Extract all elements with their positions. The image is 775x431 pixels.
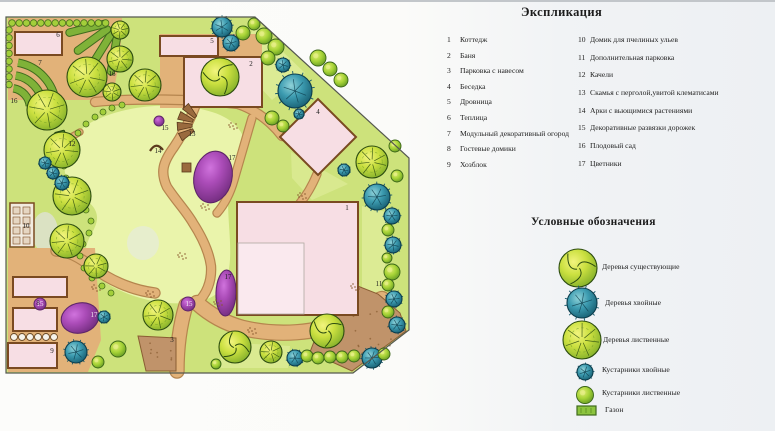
existing-tree: [219, 331, 251, 363]
deciduous-shrub: [324, 351, 336, 363]
hedge-shrub: [92, 114, 98, 120]
hedge-shrub: [30, 20, 37, 27]
item-label: Скамья с перголой,увитой клематисами: [590, 89, 773, 97]
greenhouse: [15, 32, 62, 55]
item-label: Плодовый сад: [590, 142, 773, 150]
item-number: 12: [578, 71, 590, 79]
deciduous-shrub: [382, 279, 394, 291]
plan-number-label: 1: [345, 204, 349, 212]
item-label: Беседка: [460, 83, 577, 91]
deciduous-shrub: [261, 51, 275, 65]
explication-item: 11Дополнительная парковка: [578, 54, 773, 72]
hedge-shrub: [6, 42, 13, 49]
hedge-shrub: [52, 20, 59, 27]
deciduous-tree: [103, 83, 121, 101]
explication-item: 3Парковка с навесом: [447, 67, 577, 83]
deciduous-shrub: [92, 356, 104, 368]
item-number: 9: [447, 161, 460, 169]
hedge-shrub: [6, 58, 13, 65]
item-label: Хозблок: [460, 161, 577, 169]
stepping-stone: [27, 334, 34, 341]
deciduous-tree: [27, 90, 67, 130]
conifer-tree: [383, 207, 402, 226]
item-label: Гостевые домики: [460, 145, 577, 153]
item-label: Дополнительная парковка: [590, 54, 773, 62]
deciduous-shrub: [336, 351, 348, 363]
deciduous-tree: [67, 57, 107, 97]
symbol-label: Кустарники хвойные: [602, 366, 670, 374]
item-number: 17: [578, 160, 590, 168]
hedge-shrub: [99, 283, 105, 289]
symbols-title: Условные обозначения: [531, 216, 656, 228]
plan-number-label: 14: [155, 147, 163, 155]
hedge-shrub: [86, 230, 92, 236]
stepping-stone: [19, 334, 26, 341]
deciduous-tree: [84, 254, 108, 278]
plan-number-label: 12: [69, 140, 77, 148]
explication-item: 9Хозблок: [447, 161, 577, 177]
item-number: 7: [447, 130, 460, 138]
hedge-shrub: [74, 20, 81, 27]
hedge-shrub: [88, 218, 94, 224]
deciduous-shrub: [348, 350, 360, 362]
deciduous-shrub: [382, 306, 394, 318]
lawn-icon: [575, 402, 601, 420]
plan-number-label: 17: [225, 273, 233, 281]
plan-number-label: 15: [186, 300, 194, 308]
deciduous-tree-icon: [560, 318, 604, 362]
item-label: Модульный декоративный огород: [460, 130, 577, 138]
item-label: Дровница: [460, 98, 577, 106]
plan-number-label: 5: [210, 37, 214, 45]
landscape-plan-page: 67161652415121314171171515108931117 Эксп…: [0, 0, 775, 431]
plan-number-label: 13: [189, 130, 197, 138]
item-label: Декоративные развязки дорожек: [590, 124, 773, 132]
hedge-shrub: [75, 130, 81, 136]
hedge-shrub: [88, 20, 95, 27]
item-label: Арки с вьющимися растениями: [590, 107, 773, 115]
deciduous-shrub: [301, 350, 313, 362]
item-label: Парковка с навесом: [460, 67, 577, 75]
guest-house: [13, 277, 67, 297]
conifer-tree: [564, 286, 599, 321]
deciduous-shrub: [236, 26, 250, 40]
explication-item: 15Декоративные развязки дорожек: [578, 124, 773, 142]
explication-column-1: 1Коттедж 2Баня 3Парковка с навесом 4Бесе…: [447, 36, 577, 176]
deciduous-tree: [107, 46, 133, 72]
symbol-label: Деревья лиственные: [603, 336, 669, 344]
deciduous-tree: [111, 21, 129, 39]
explication-title: Экспликация: [521, 5, 602, 20]
bench: [182, 163, 191, 172]
item-number: 13: [578, 89, 590, 97]
item-label: Качели: [590, 71, 773, 79]
item-number: 14: [578, 107, 590, 115]
guest-house: [13, 308, 57, 331]
hedge-shrub: [119, 102, 125, 108]
explication-item: 2Баня: [447, 52, 577, 68]
deciduous-shrub: [110, 341, 126, 357]
deciduous-shrub: [382, 253, 392, 263]
plan-number-label: 6: [56, 31, 60, 39]
deciduous-shrub: [577, 387, 594, 404]
hedge-shrub: [100, 109, 106, 115]
stepping-stone: [35, 334, 42, 341]
item-label: Домик для пчелиных ульев: [590, 36, 773, 44]
hedge-shrub: [6, 27, 13, 34]
deciduous-shrub: [211, 359, 221, 369]
deciduous-shrub: [334, 73, 348, 87]
hedge-shrub: [6, 81, 13, 88]
deciduous-shrub: [310, 50, 326, 66]
item-number: 10: [578, 36, 590, 44]
item-number: 15: [578, 124, 590, 132]
hedge-shrub: [81, 20, 88, 27]
plan-number-label: 8: [36, 299, 40, 307]
deciduous-shrub: [277, 120, 289, 132]
deciduous-shrub: [391, 170, 403, 182]
symbol-label: Газон: [605, 406, 623, 414]
plan-number-label: 17: [91, 311, 99, 319]
conifer-tree-icon: [562, 283, 602, 323]
item-number: 4: [447, 83, 460, 91]
plan-number-label: 4: [316, 108, 320, 116]
explication-item: 4Беседка: [447, 83, 577, 99]
hedge-shrub: [59, 20, 66, 27]
item-number: 8: [447, 145, 460, 153]
plan-number-label: 17: [229, 154, 237, 162]
existing-tree: [310, 314, 344, 348]
plan-number-label: 15: [162, 124, 170, 132]
hedge-shrub: [6, 50, 13, 57]
existing-tree: [201, 58, 239, 96]
item-number: 1: [447, 36, 460, 44]
item-label: Цветники: [590, 160, 773, 168]
symbol-label: Кустарники лиственные: [602, 389, 680, 397]
hedge-shrub: [66, 20, 73, 27]
plan-number-label: 10: [23, 222, 31, 230]
item-label: Теплица: [460, 114, 577, 122]
item-number: 16: [578, 142, 590, 150]
explication-item: 10Домик для пчелиных ульев: [578, 36, 773, 54]
plan-number-label: 11: [376, 280, 383, 288]
deciduous-tree: [50, 224, 84, 258]
deciduous-tree: [143, 300, 173, 330]
hedge-shrub: [9, 20, 16, 27]
stepping-stone: [43, 334, 50, 341]
stepping-stone: [51, 334, 58, 341]
explication-item: 6Теплица: [447, 114, 577, 130]
deciduous-tree: [356, 146, 388, 178]
explication-item: 8Гостевые домики: [447, 145, 577, 161]
deciduous-shrub: [323, 62, 337, 76]
existing-tree: [559, 249, 597, 287]
deciduous-tree: [563, 321, 601, 359]
item-label: Коттедж: [460, 36, 577, 44]
plan-number-label: 16: [11, 97, 19, 105]
explication-item: 13Скамья с перголой,увитой клематисами: [578, 89, 773, 107]
deciduous-shrub: [312, 352, 324, 364]
hedge-shrub: [6, 35, 13, 42]
hedge-shrub: [16, 20, 23, 27]
explication-item: 5Дровница: [447, 98, 577, 114]
conifer-tree: [576, 363, 595, 382]
explication-item: 7Модульный декоративный огород: [447, 130, 577, 146]
plan-number-label: 2: [249, 60, 253, 68]
hedge-shrub: [38, 20, 45, 27]
hedge-shrub: [102, 20, 109, 27]
explication-item: 12Качели: [578, 71, 773, 89]
explication-item: 16Плодовый сад: [578, 142, 773, 160]
hedge-shrub: [95, 20, 102, 27]
deciduous-shrub: [382, 224, 394, 236]
explication-item: 1Коттедж: [447, 36, 577, 52]
item-number: 5: [447, 98, 460, 106]
item-number: 11: [578, 54, 590, 62]
deciduous-shrub: [384, 264, 400, 280]
hedge-shrub: [6, 66, 13, 73]
item-number: 3: [447, 67, 460, 75]
stepping-stone: [11, 334, 18, 341]
deciduous-tree: [260, 341, 282, 363]
explication-item: 14Арки с вьющимися растениями: [578, 107, 773, 125]
hedge-shrub: [6, 74, 13, 81]
explication-item: 17Цветники: [578, 160, 773, 178]
hedge-shrub: [109, 105, 115, 111]
item-number: 2: [447, 52, 460, 60]
hedge-shrub: [23, 20, 30, 27]
plan-number-label: 3: [170, 336, 174, 344]
explication-column-2: 10Домик для пчелиных ульев 11Дополнитель…: [578, 36, 773, 178]
plan-number-label: 9: [50, 347, 54, 355]
hedge-shrub: [108, 290, 114, 296]
plan-number-label: 7: [38, 59, 42, 67]
plan-number-label: 16: [109, 70, 117, 78]
item-number: 6: [447, 114, 460, 122]
item-label: Баня: [460, 52, 577, 60]
hedge-shrub: [83, 121, 89, 127]
hedge-shrub: [45, 20, 52, 27]
garden-plan: 67161652415121314171171515108931117: [0, 0, 430, 380]
symbol-label: Деревья хвойные: [605, 299, 661, 307]
symbol-label: Деревья существующие: [602, 263, 680, 271]
deciduous-shrub: [265, 111, 279, 125]
deciduous-tree: [129, 69, 161, 101]
